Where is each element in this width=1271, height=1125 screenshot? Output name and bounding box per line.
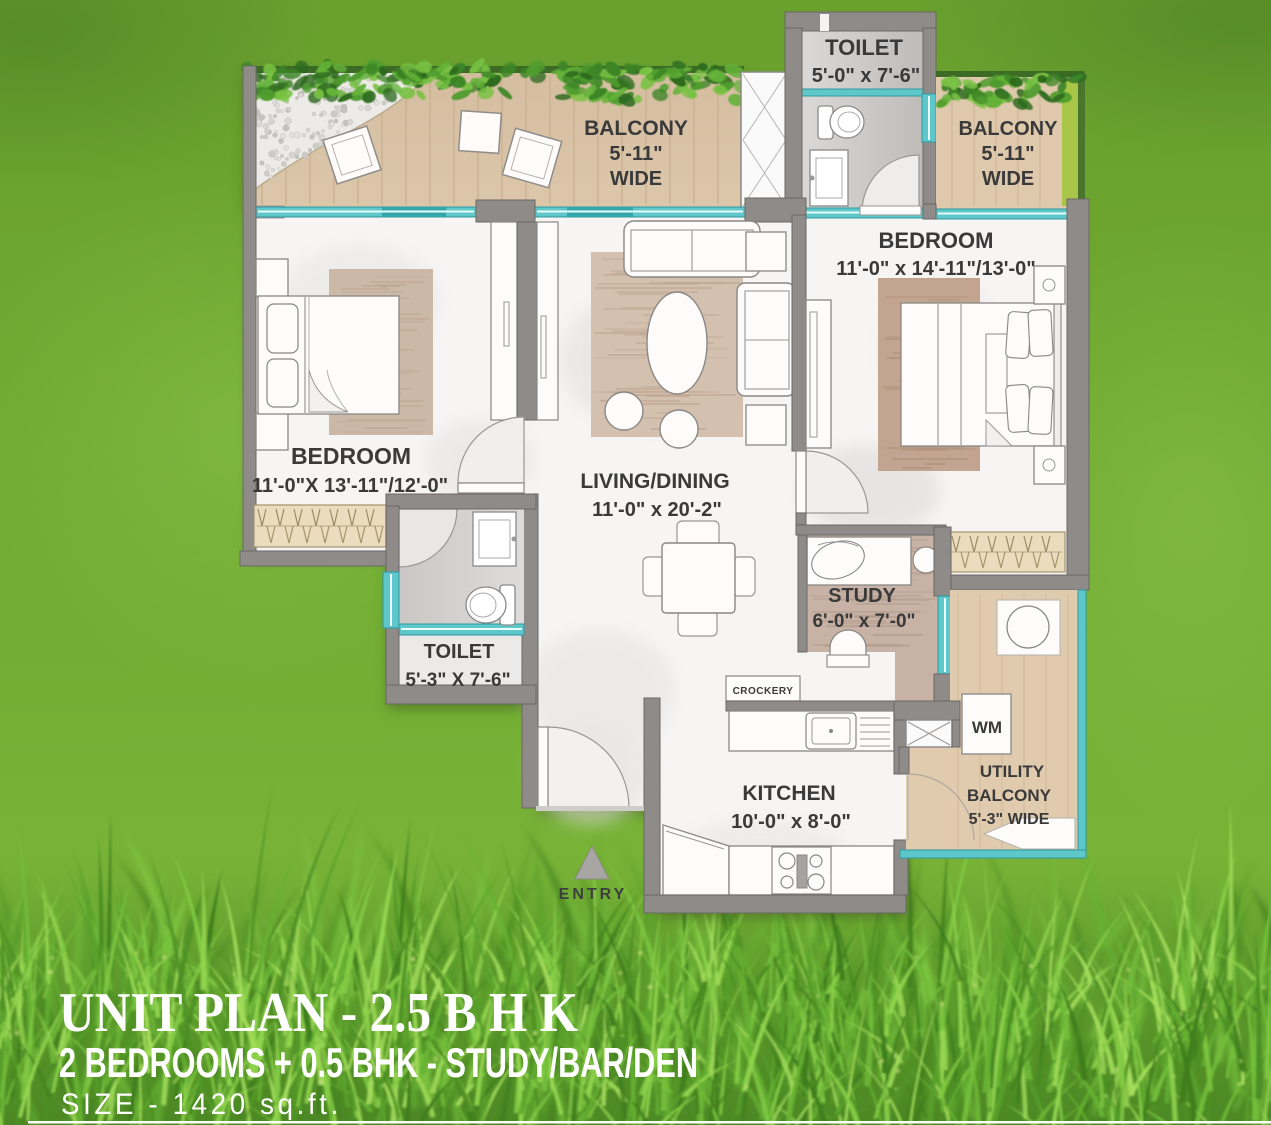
- svg-text:UTILITY: UTILITY: [980, 762, 1045, 781]
- svg-text:BALCONY: BALCONY: [584, 117, 688, 140]
- svg-text:TOILET: TOILET: [825, 35, 903, 60]
- svg-text:BEDROOM: BEDROOM: [291, 443, 411, 469]
- svg-text:11'-0" x 14'-11"/13'-0": 11'-0" x 14'-11"/13'-0": [836, 258, 1036, 280]
- svg-text:UNIT PLAN - 2.5 B H K: UNIT PLAN - 2.5 B H K: [59, 982, 578, 1044]
- svg-text:ENTRY: ENTRY: [559, 886, 628, 903]
- svg-text:KITCHEN: KITCHEN: [742, 782, 835, 805]
- svg-text:6'-0" x 7'-0": 6'-0" x 7'-0": [812, 611, 915, 632]
- svg-text:10'-0" x 8'-0": 10'-0" x 8'-0": [731, 811, 851, 833]
- svg-text:WIDE: WIDE: [982, 168, 1034, 190]
- svg-text:LIVING/DINING: LIVING/DINING: [580, 470, 729, 493]
- svg-text:5'-3" X 7'-6": 5'-3" X 7'-6": [405, 670, 510, 691]
- svg-text:5'-3" WIDE: 5'-3" WIDE: [969, 811, 1050, 828]
- svg-text:5'-11": 5'-11": [609, 143, 662, 165]
- svg-text:WIDE: WIDE: [610, 168, 662, 190]
- svg-text:2 BEDROOMS + 0.5 BHK - STUDY/B: 2 BEDROOMS + 0.5 BHK - STUDY/BAR/DEN: [59, 1039, 698, 1086]
- svg-text:CROCKERY: CROCKERY: [733, 686, 794, 697]
- svg-text:5'-0" x 7'-6": 5'-0" x 7'-6": [812, 65, 921, 87]
- svg-text:WM: WM: [972, 718, 1002, 737]
- svg-text:STUDY: STUDY: [828, 585, 896, 607]
- svg-text:11'-0" x 20'-2": 11'-0" x 20'-2": [592, 499, 722, 521]
- svg-text:5'-11": 5'-11": [981, 143, 1034, 165]
- svg-text:SIZE - 1420 sq.ft.: SIZE - 1420 sq.ft.: [61, 1088, 342, 1121]
- svg-text:TOILET: TOILET: [424, 641, 495, 663]
- svg-text:BEDROOM: BEDROOM: [879, 228, 994, 253]
- svg-text:BALCONY: BALCONY: [967, 786, 1052, 805]
- svg-text:BALCONY: BALCONY: [959, 118, 1059, 140]
